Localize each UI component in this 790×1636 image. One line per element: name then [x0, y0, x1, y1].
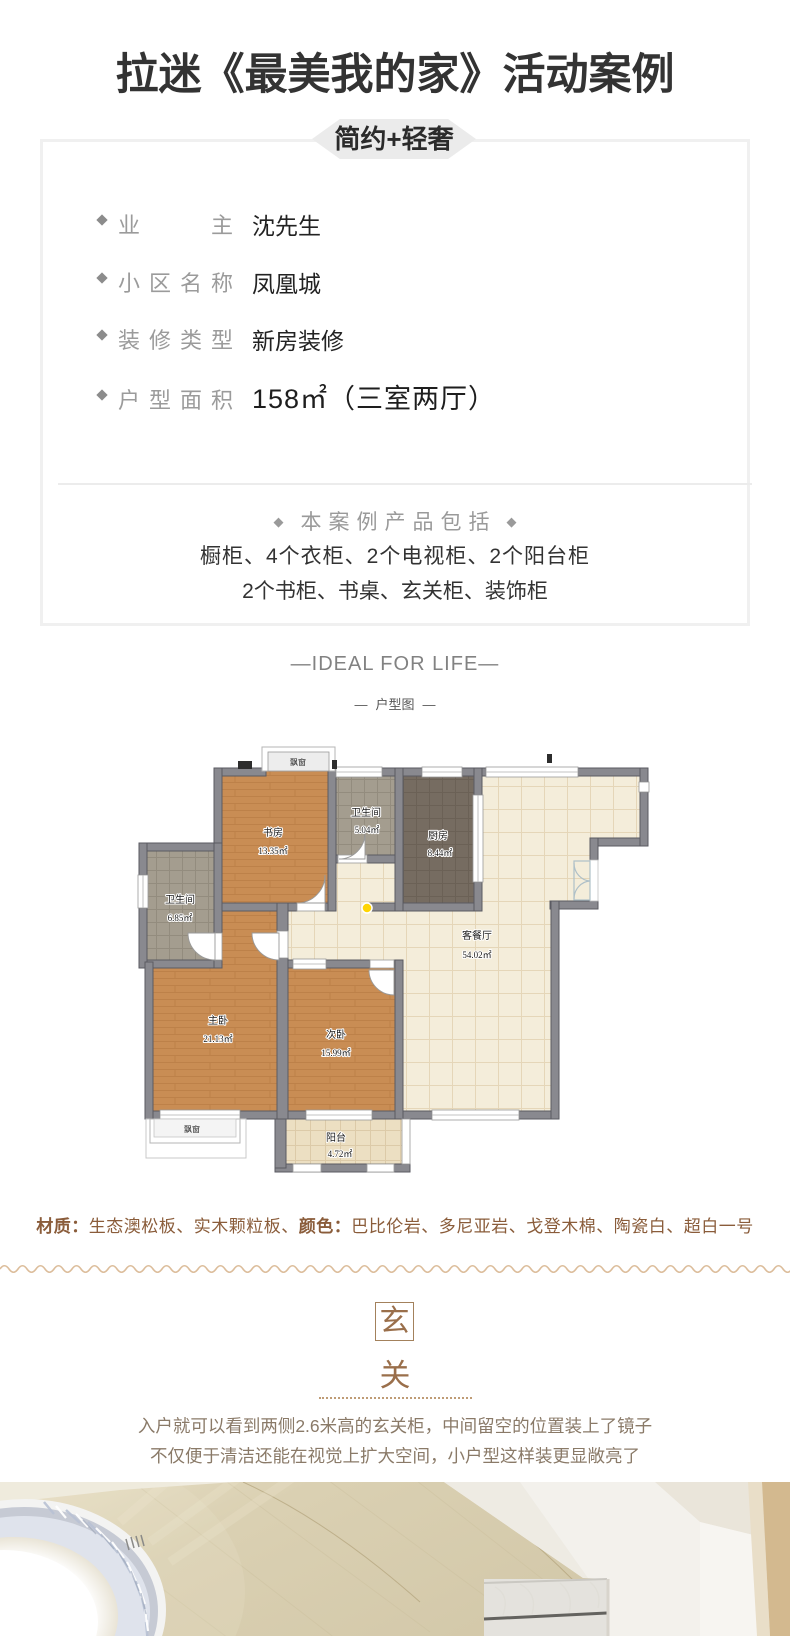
svg-text:21.13㎡: 21.13㎡	[203, 1034, 232, 1044]
svg-text:主卧: 主卧	[208, 1014, 228, 1027]
svg-text:卫生间: 卫生间	[351, 806, 381, 819]
svg-text:5.04㎡: 5.04㎡	[355, 825, 380, 835]
svg-text:客餐厅: 客餐厅	[462, 929, 492, 942]
svg-text:飘窗: 飘窗	[290, 757, 306, 767]
svg-text:15.99㎡: 15.99㎡	[321, 1048, 350, 1058]
svg-text:54.02㎡: 54.02㎡	[462, 950, 491, 960]
svg-text:13.35㎡: 13.35㎡	[258, 846, 287, 856]
svg-text:8.44㎡: 8.44㎡	[428, 848, 453, 858]
svg-text:厨房: 厨房	[428, 829, 448, 842]
svg-text:4.72㎡: 4.72㎡	[328, 1149, 353, 1159]
svg-text:阳台: 阳台	[326, 1131, 346, 1144]
svg-text:书房: 书房	[263, 826, 283, 839]
svg-text:飘窗: 飘窗	[184, 1124, 200, 1134]
svg-text:次卧: 次卧	[326, 1028, 346, 1041]
svg-text:6.85㎡: 6.85㎡	[168, 913, 193, 923]
svg-text:卫生间: 卫生间	[165, 893, 195, 906]
